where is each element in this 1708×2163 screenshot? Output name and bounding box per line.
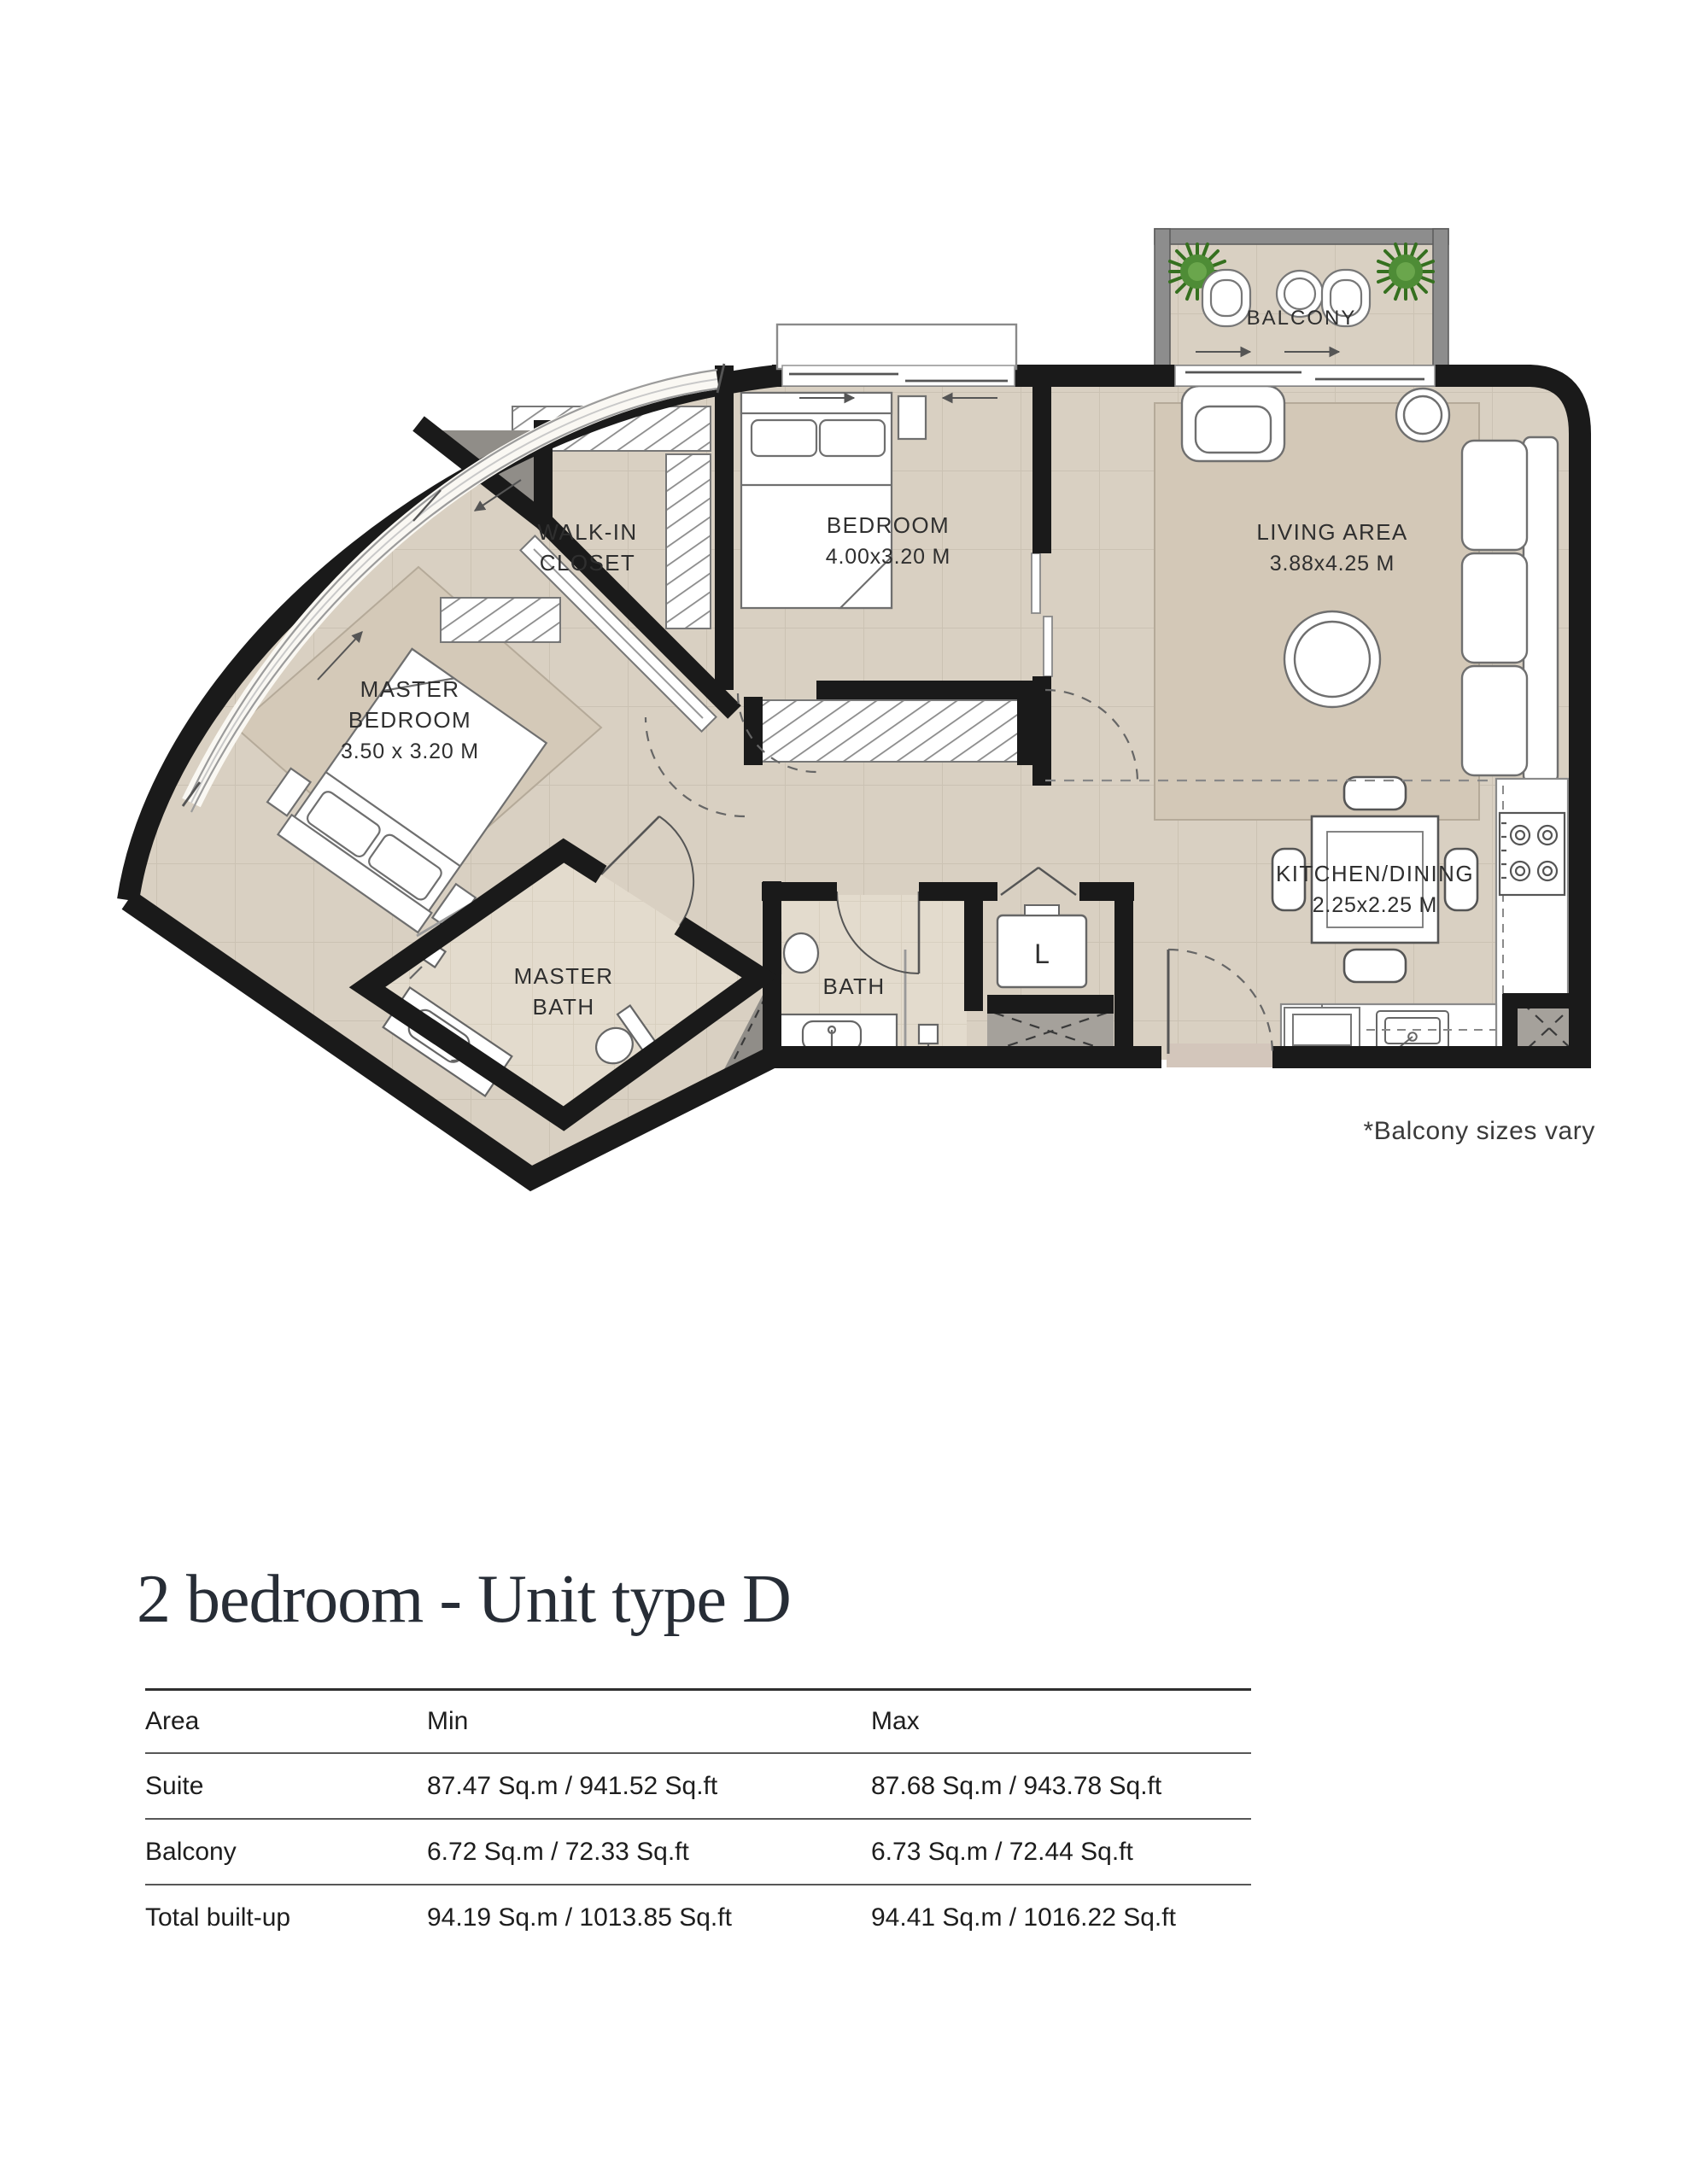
living-rug <box>1155 403 1479 820</box>
table-row: Total built-up 94.19 Sq.m / 1013.85 Sq.f… <box>145 1885 1251 1950</box>
row-min-value: 87.47 Sq.m / 941.52 Sq.ft <box>427 1772 871 1801</box>
row-label: Balcony <box>145 1838 427 1867</box>
area-table: Area Min Max Suite 87.47 Sq.m / 941.52 S… <box>145 1688 1251 1950</box>
balcony-label: BALCONY <box>1247 307 1357 330</box>
bedroom-dims: 4.00x3.20 M <box>826 545 951 569</box>
living-dims: 3.88x4.25 M <box>1270 552 1395 576</box>
col-header-max: Max <box>871 1707 1251 1736</box>
armchair <box>1182 386 1284 461</box>
entry-threshold <box>1167 1044 1272 1067</box>
page-title: 2 bedroom - Unit type D <box>137 1561 791 1639</box>
brochure-page: BALCONY <box>0 0 1708 2163</box>
nightstand <box>898 396 926 439</box>
master-bedroom-dims: 3.50 x 3.20 M <box>341 740 479 763</box>
master-bedroom-label-1: MASTER <box>360 676 460 702</box>
balcony-note: *Balcony sizes vary <box>1364 1117 1596 1145</box>
plant-icon <box>1378 244 1433 299</box>
table-row: Suite 87.47 Sq.m / 941.52 Sq.ft 87.68 Sq… <box>145 1754 1251 1820</box>
row-max-value: 94.41 Sq.m / 1016.22 Sq.ft <box>871 1903 1251 1932</box>
table-header-row: Area Min Max <box>145 1691 1251 1754</box>
walkin-label-2: CLOSET <box>540 550 635 576</box>
master-bath-label-1: MASTER <box>514 963 614 989</box>
walkin-label-1: WALK-IN <box>537 519 637 545</box>
bath-label: BATH <box>822 973 885 999</box>
kitchen-label: KITCHEN/DINING <box>1276 861 1474 886</box>
sofa <box>1462 437 1558 782</box>
row-min-value: 6.72 Sq.m / 72.33 Sq.ft <box>427 1838 871 1867</box>
col-header-min: Min <box>427 1707 871 1736</box>
stove <box>1500 813 1565 895</box>
balcony-sliding-door <box>1175 365 1435 386</box>
side-table <box>1396 389 1449 441</box>
row-label: Suite <box>145 1772 427 1801</box>
kitchen-dims: 2.25x2.25 M <box>1313 893 1437 917</box>
row-max-value: 87.68 Sq.m / 943.78 Sq.ft <box>871 1772 1251 1801</box>
living-label: LIVING AREA <box>1256 519 1407 545</box>
coffee-table <box>1284 611 1380 707</box>
row-label: Total built-up <box>145 1903 427 1932</box>
laundry-label: L <box>1034 938 1050 969</box>
col-header-area: Area <box>145 1707 427 1736</box>
row-max-value: 6.73 Sq.m / 72.44 Sq.ft <box>871 1838 1251 1867</box>
row-min-value: 94.19 Sq.m / 1013.85 Sq.ft <box>427 1903 871 1932</box>
balcony: BALCONY <box>1155 229 1448 369</box>
fridge <box>1284 1004 1360 1052</box>
master-bedroom-label-2: BEDROOM <box>348 707 471 733</box>
bed <box>741 393 892 608</box>
bedroom-label: BEDROOM <box>827 512 950 538</box>
table-row: Balcony 6.72 Sq.m / 72.33 Sq.ft 6.73 Sq.… <box>145 1820 1251 1885</box>
floor-plan: BALCONY <box>0 0 1708 1264</box>
master-bath-label-2: BATH <box>532 994 594 1020</box>
